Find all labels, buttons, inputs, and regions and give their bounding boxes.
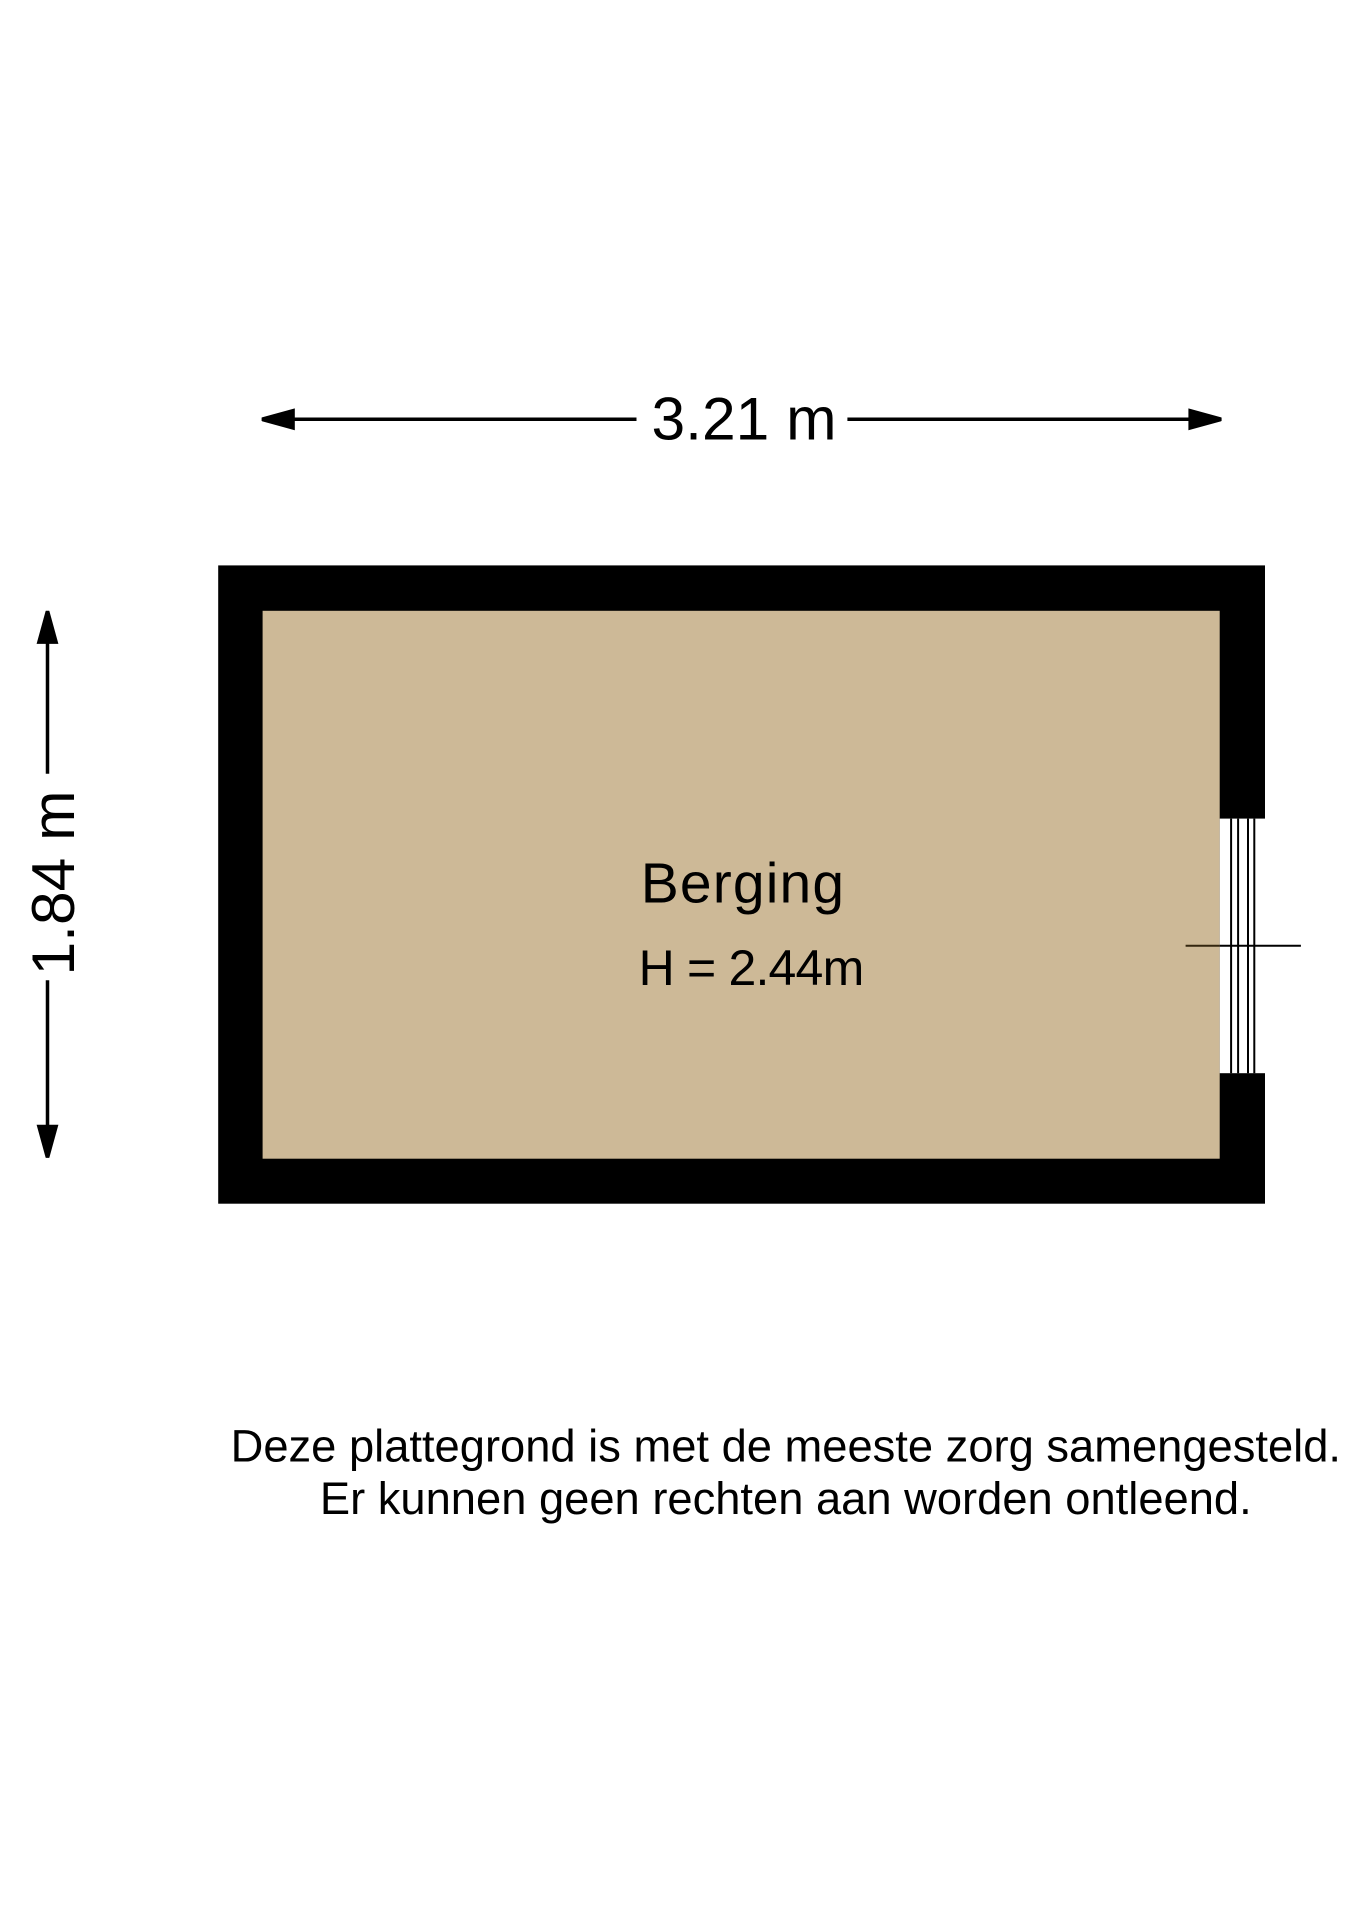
svg-text:3.21 m: 3.21 m: [652, 385, 837, 453]
svg-text:1.84 m: 1.84 m: [19, 791, 87, 976]
svg-text:H = 2.44m: H = 2.44m: [639, 940, 864, 996]
svg-text:Berging: Berging: [641, 852, 846, 916]
svg-text:Er kunnen geen rechten aan wor: Er kunnen geen rechten aan worden ontlee…: [320, 1473, 1252, 1524]
svg-text:Deze plattegrond is met de mee: Deze plattegrond is met de meeste zorg s…: [231, 1420, 1341, 1471]
